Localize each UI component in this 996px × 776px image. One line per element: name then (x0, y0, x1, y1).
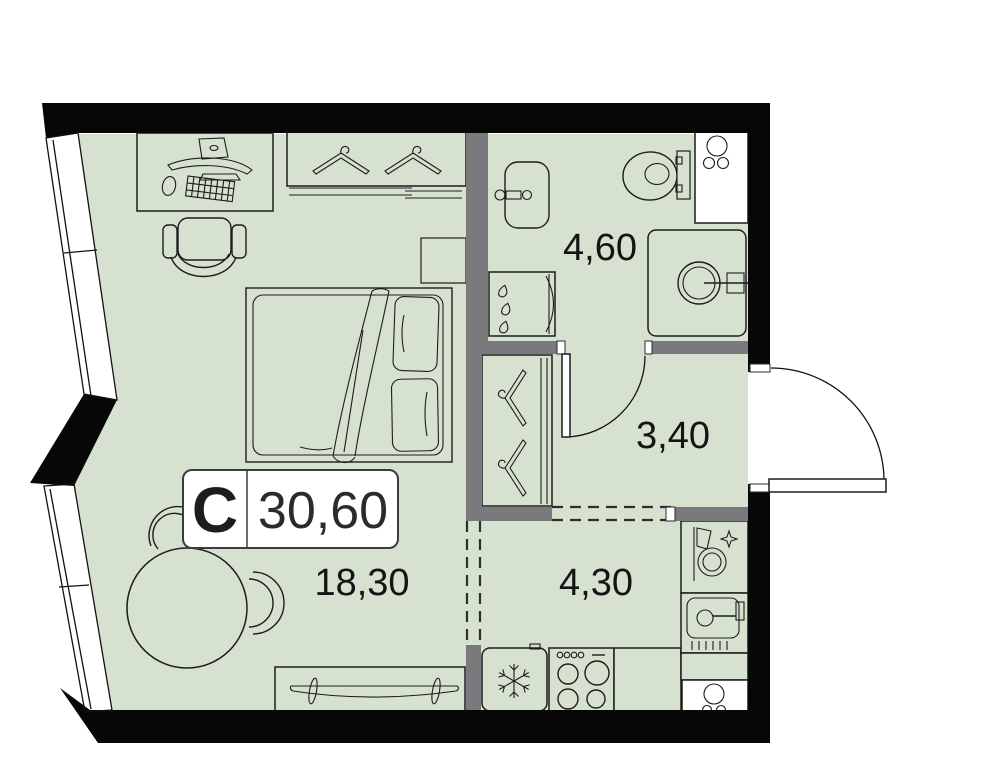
door-leaf (769, 479, 886, 492)
kitchen-sink-icon (681, 593, 748, 653)
unit-total-area: 30,60 (258, 482, 388, 540)
floor-plan-page: С 30,60 4,60 3,40 4,30 18,30 (0, 0, 996, 776)
door-jamb (645, 341, 652, 354)
door-leaf (562, 354, 570, 437)
unit-badge: С 30,60 (183, 470, 398, 548)
room-label-bathroom: 4,60 (563, 227, 637, 269)
desk-icon (137, 133, 273, 211)
tv-stand-icon (275, 667, 465, 712)
entrance-door (769, 368, 886, 492)
ventilation-shaft-icon (695, 123, 748, 223)
door-jamb (557, 341, 565, 354)
kitchen-counter (681, 653, 748, 680)
clean-dishes-icon (681, 521, 748, 593)
door-swing-icon (771, 368, 884, 481)
fridge-icon (482, 644, 547, 711)
washing-machine-icon (648, 230, 752, 336)
hall-wardrobe-icon (482, 355, 552, 506)
room-label-living: 18,30 (314, 562, 409, 604)
room-label-kitchen: 4,30 (559, 562, 633, 604)
floor-plan-svg: С 30,60 4,60 3,40 4,30 18,30 (0, 0, 996, 776)
ventilation-shaft-icon (682, 680, 748, 715)
stove-icon (549, 648, 614, 711)
door-jamb (750, 484, 770, 492)
door-jamb (666, 507, 675, 521)
room-label-hallway: 3,40 (636, 415, 710, 457)
nightstand-icon (421, 238, 466, 283)
shower-icon (489, 272, 555, 336)
door-jamb (750, 364, 770, 372)
unit-type-letter: С (192, 474, 238, 546)
kitchen-counter (614, 648, 681, 711)
